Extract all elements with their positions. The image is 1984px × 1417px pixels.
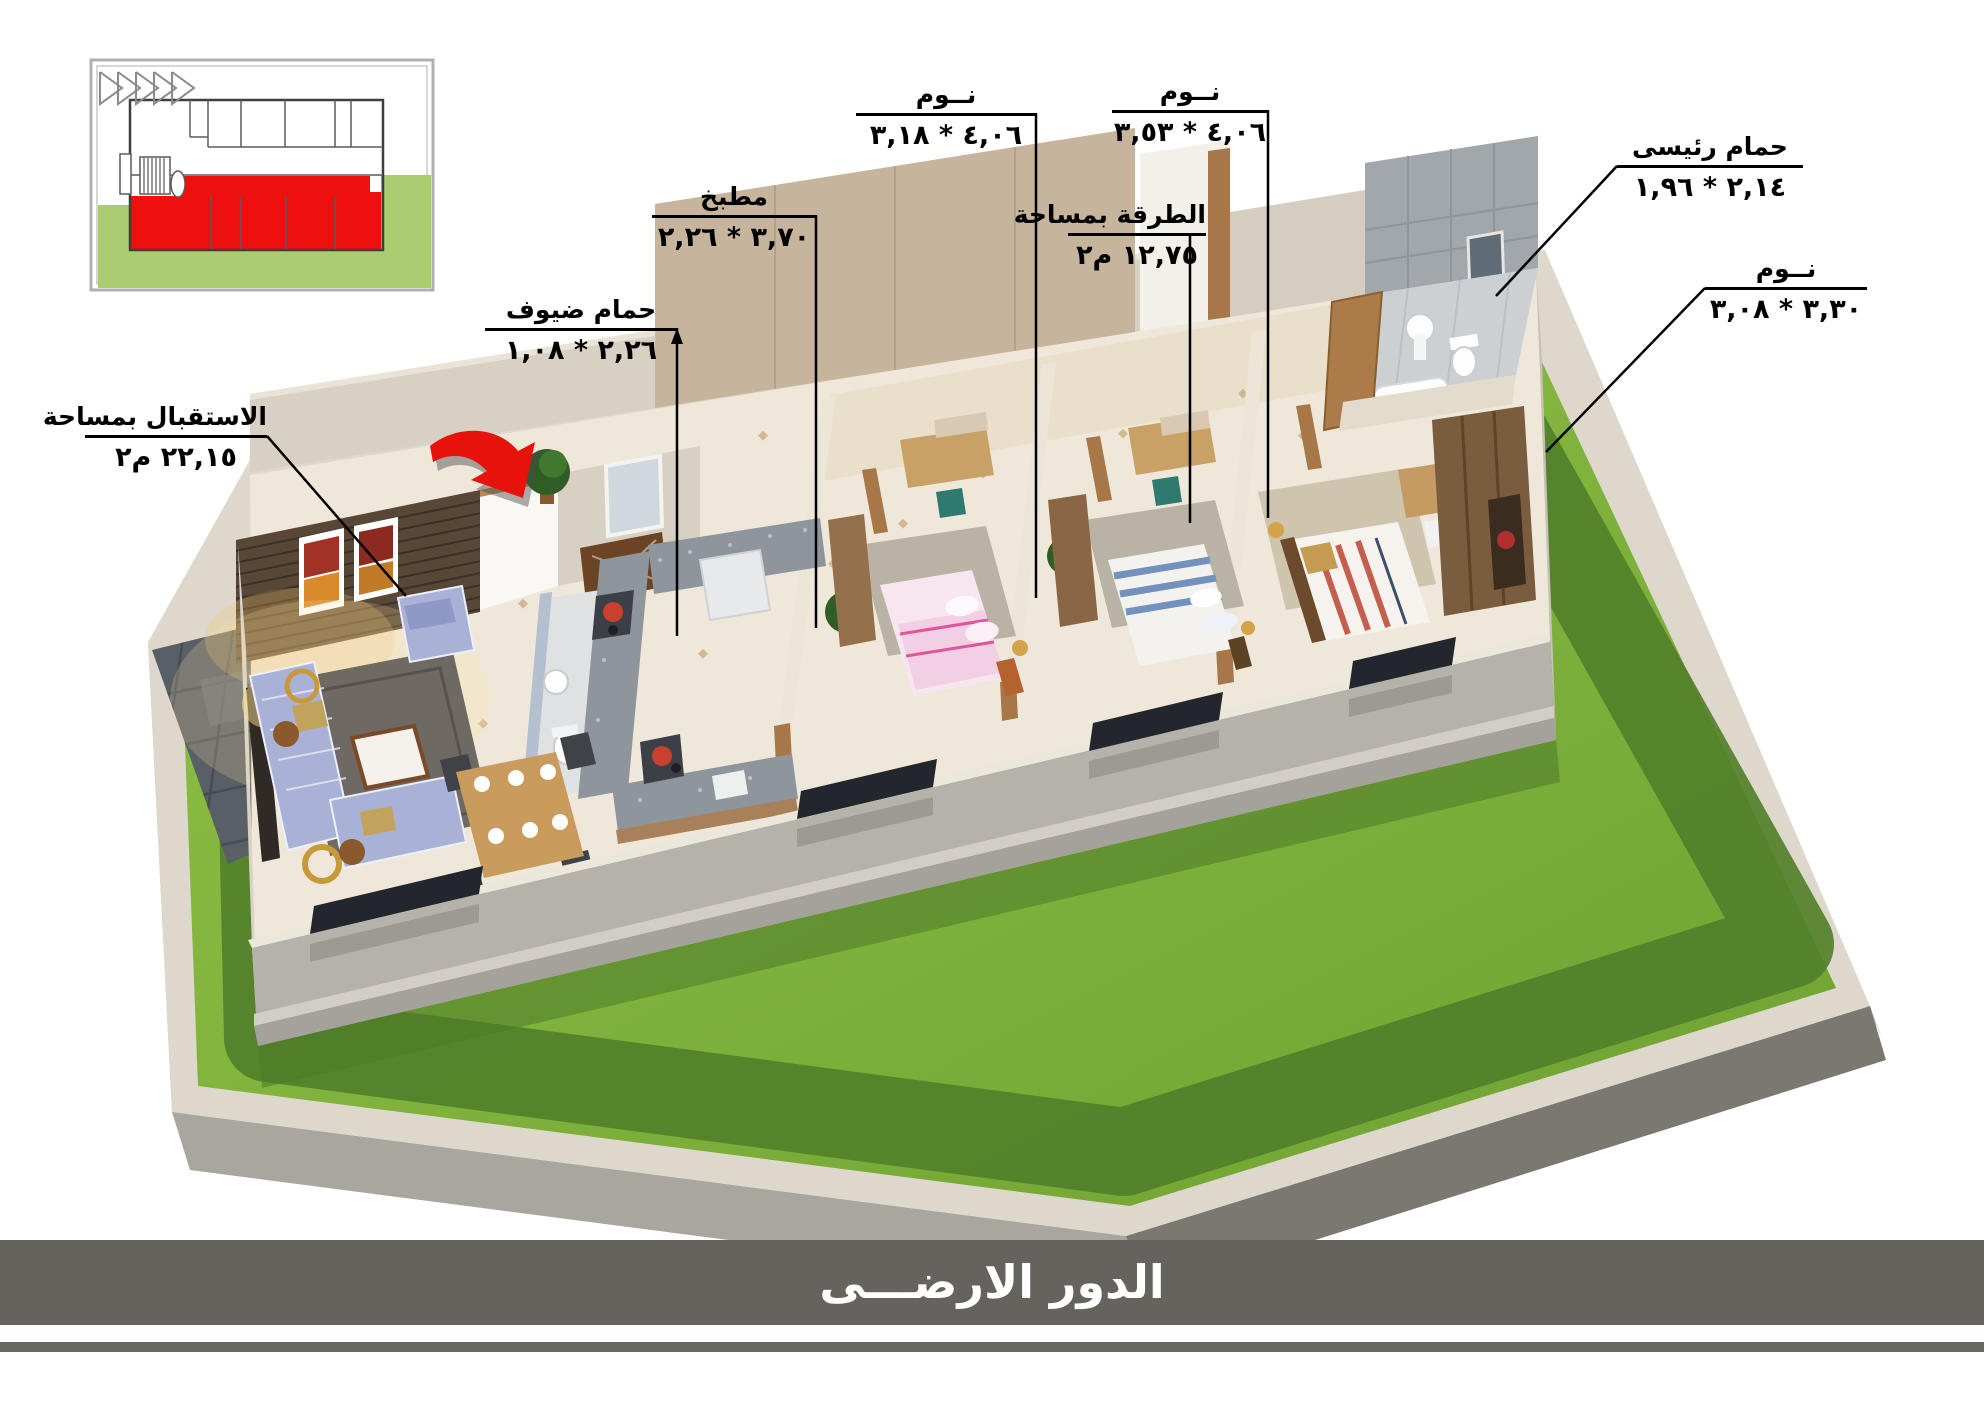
label-master-bathroom: حمام رئيسى ٢,١٤ * ١,٩٦ <box>1617 131 1803 208</box>
bathroom-marble-wall <box>1365 136 1538 295</box>
lamp <box>1012 640 1028 656</box>
label-reception: الاستقبال بمساحة ٢٢,١٥ م٢ <box>85 401 267 478</box>
floor-title-banner: الدور الارضـــى <box>0 1240 1984 1325</box>
label-hallway: الطرقة بمساحة ١٢,٧٥ م٢ <box>1068 199 1206 276</box>
room-name: حمام رئيسى <box>1617 131 1803 163</box>
site-plan-inset <box>91 60 433 290</box>
label-kitchen: مطبخ ٣,٧٠ * ٢,٢٦ <box>652 181 816 258</box>
label-bedroom-middle: نــوم ٤,٠٦ * ٣,٥٣ <box>1112 76 1268 153</box>
console-mirror <box>606 456 662 536</box>
room-name: نــوم <box>1112 76 1268 108</box>
room-area: ١٢,٧٥ م٢ <box>1068 236 1206 276</box>
lamp <box>1268 522 1284 538</box>
room-dimensions: ٤,٠٦ * ٣,٥٣ <box>1112 113 1268 153</box>
room-dimensions: ٤,٠٦ * ٣,١٨ <box>856 116 1036 156</box>
banner-divider-bar <box>0 1342 1984 1352</box>
lamp <box>1241 621 1255 635</box>
coffee-table <box>352 726 428 788</box>
label-bedroom-left: نــوم ٤,٠٦ * ٣,١٨ <box>856 79 1036 156</box>
kitchen-island <box>700 550 770 620</box>
room-name: نــوم <box>856 79 1036 111</box>
room-dimensions: ٢,١٤ * ١,٩٦ <box>1617 168 1803 208</box>
large-wardrobe <box>1432 406 1536 616</box>
room-name: الاستقبال بمساحة <box>85 401 267 433</box>
room-dimensions: ٢,٢٦ * ١,٠٨ <box>485 331 677 371</box>
room-dimensions: ٣,٣٠ * ٣,٠٨ <box>1705 290 1867 330</box>
room-name: حمام ضيوف <box>485 294 677 326</box>
toilet <box>1452 347 1476 377</box>
sink <box>544 670 568 694</box>
ground-floor-3d-plan: الاستقبال بمساحة ٢٢,١٥ م٢ حمام ضيوف ٢,٢٦… <box>0 0 1984 1417</box>
floor-plan-scene <box>0 0 1984 1417</box>
label-guest-bathroom: حمام ضيوف ٢,٢٦ * ١,٠٨ <box>485 294 677 371</box>
room-area: ٢٢,١٥ م٢ <box>85 438 267 478</box>
floor-title: الدور الارضـــى <box>0 1240 1984 1324</box>
room-name: مطبخ <box>652 181 816 213</box>
desk-chair <box>936 488 966 518</box>
room-dimensions: ٣,٧٠ * ٢,٢٦ <box>652 218 816 258</box>
desk-chair <box>1152 476 1182 506</box>
room-name: الطرقة بمساحة <box>1068 199 1206 231</box>
label-bedroom-right: نــوم ٣,٣٠ * ٣,٠٨ <box>1705 253 1867 330</box>
room-name: نــوم <box>1705 253 1867 285</box>
inset-stairs <box>120 154 170 194</box>
